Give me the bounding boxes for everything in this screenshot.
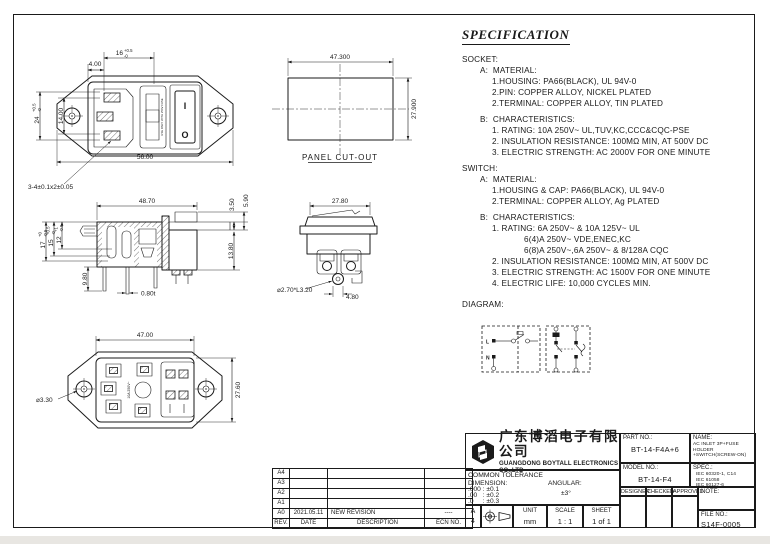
angular-value: ±3° <box>561 490 571 497</box>
svg-text:-0: -0 <box>124 54 128 59</box>
svg-text:+0.5: +0.5 <box>46 226 51 235</box>
dim-4870: 48.70 <box>139 198 156 205</box>
table-header-row: REV. DATE DESCRIPTION ECN NO. <box>273 519 473 529</box>
side-switch-cap <box>175 212 197 222</box>
unit-label: UNIT <box>514 508 546 514</box>
dim-47300: 47.300 <box>330 54 350 61</box>
desc-cell <box>328 499 425 509</box>
rev-cell: A0 <box>273 509 290 519</box>
side-leg-2 <box>126 267 129 294</box>
side-pin-2 <box>122 231 131 258</box>
front-flange-outline <box>57 76 233 156</box>
file-no-cell: FILE NO.: S14F-0005 <box>698 510 756 528</box>
diagram-box-left <box>482 326 540 372</box>
fuse-symbol-2 <box>553 333 560 338</box>
approved-header: APPROVED <box>672 487 698 496</box>
spec-cell: SPEC.: IEC 60320-1, C14 IEC 61058 IEC 60… <box>690 463 756 487</box>
panel-cutout-drawing: 47.300 27.900 PANEL CUT-OUT <box>272 54 418 163</box>
switch-off-marking: O <box>181 130 188 140</box>
name-value-line2: +SWITCH(SCREW-ON) <box>691 453 755 459</box>
spec-line: 1.HOUSING: PA66(BLACK), UL 94V-0 <box>462 76 754 87</box>
model-no-value: BT-14-F4 <box>621 475 689 484</box>
hole-note-330: ⌀3.30 <box>36 397 53 404</box>
svg-text:-0.5: -0.5 <box>59 224 64 232</box>
hole-note-270: ⌀2.70*L3.20 <box>277 287 313 294</box>
designer-header: DESIGNER <box>620 487 646 496</box>
company-cell: 广东博滔电子有限公司 GUANGDONG BOYTALL ELECTRONICS… <box>465 433 620 470</box>
svg-text:+0.5: +0.5 <box>124 48 133 53</box>
date-cell <box>290 499 328 509</box>
specification-section: SPECIFICATION SOCKET: A: MATERIAL: 1.HOU… <box>462 26 754 310</box>
spec-line: 2.PIN: COPPER ALLOY, NICKEL PLATED <box>462 87 754 98</box>
spec-line: DIAGRAM: <box>462 299 754 310</box>
table-row: A2 <box>273 489 473 499</box>
neutral-label: N <box>486 356 490 362</box>
side-leg-1 <box>103 267 106 291</box>
rev-header: REV. <box>273 519 290 529</box>
spec-line: 3. ELECTRIC STRENGTH: AC 2000V FOR ONE M… <box>462 147 754 158</box>
dim-4: 4.00 <box>89 61 102 68</box>
bottom-center-boss <box>135 382 151 398</box>
sheet-cell: SHEET 1 of 1 <box>583 505 620 528</box>
bottom-rating-text: 10A 250V~ <box>127 381 131 398</box>
note-label: NOTE: <box>699 488 755 496</box>
svg-text:+0.5: +0.5 <box>32 103 37 112</box>
side-view-drawing: 48.70 3.50 5.90 13.80 17 +0 -0.5 15 +0.5… <box>38 194 251 298</box>
switch-on-marking: I <box>184 101 187 111</box>
part-no-label: PART NO.: <box>621 434 689 442</box>
note-cell: NOTE: <box>698 487 756 510</box>
name-value-line1: AC INLET 3P+FUSE HOLDER <box>691 442 755 453</box>
fuse-warning-text: USE ONLY WITH 250V FUSE <box>160 98 164 135</box>
rev-cell: A1 <box>273 499 290 509</box>
date-cell <box>290 469 328 479</box>
company-name-cn: 广东博滔电子有限公司 <box>499 430 619 460</box>
end-rocker-profile <box>312 210 360 216</box>
table-row: A4 <box>273 469 473 479</box>
dim-590: 5.90 <box>243 194 250 207</box>
dim-1380-side: 13.80 <box>228 242 235 259</box>
spring-symbol <box>581 344 585 356</box>
rev-cell: A4 <box>273 469 290 479</box>
end-rocker-cap <box>305 217 375 226</box>
file-no-value: S14F-0005 <box>699 520 755 529</box>
side-switch-body <box>169 230 197 270</box>
dim-480: 4.80 <box>346 294 359 301</box>
specification-title: SPECIFICATION <box>462 27 570 45</box>
title-block: 广东博滔电子有限公司 GUANGDONG BOYTALL ELECTRONICS… <box>465 433 756 528</box>
wiring-diagram: L N <box>482 326 590 372</box>
end-flange-plate <box>300 226 377 234</box>
pin-size-note: 3-4±0.1x2±0.05 <box>28 184 73 191</box>
unit-value: mm <box>514 517 546 526</box>
spec-line: A: MATERIAL: <box>462 65 754 76</box>
date-header: DATE <box>290 519 328 529</box>
svg-text:17: 17 <box>40 241 47 249</box>
spec-line: 6(4)A 250V~ VDE,ENEC,KC <box>462 234 754 245</box>
table-row: A0 2021.05.11 NEW REVISION ---- <box>273 509 473 519</box>
spec-line: 2.TERMINAL: COPPER ALLOY, TIN PLATED <box>462 98 754 109</box>
spec-line: 2.TERMINAL: COPPER ALLOY, Ag PLATED <box>462 196 754 207</box>
sheet-size-letter: A <box>466 507 480 517</box>
svg-text:+0: +0 <box>38 231 43 237</box>
date-cell: 2021.05.11 <box>290 509 328 519</box>
desc-cell <box>328 489 425 499</box>
dim-4700: 47.00 <box>137 332 154 339</box>
table-row: A1 <box>273 499 473 509</box>
end-screw-terminal <box>333 274 344 285</box>
side-pin-1 <box>107 226 116 258</box>
svg-text:15: 15 <box>48 239 55 247</box>
side-leg-3 <box>154 267 157 288</box>
sheet-label: SHEET <box>584 508 619 514</box>
svg-text:-0: -0 <box>37 108 42 112</box>
name-label: NAME: <box>691 434 755 442</box>
sheet-value: 1 of 1 <box>584 517 619 526</box>
socket-pin-top <box>104 93 120 102</box>
part-no-cell: PART NO.: BT-14-F4A+6 <box>620 433 690 463</box>
unit-cell: UNIT mm <box>513 505 547 528</box>
desc-cell <box>328 469 425 479</box>
side-switch-bracket <box>169 222 230 230</box>
spec-line: 2. INSULATION RESISTANCE: 100MΩ MIN, AT … <box>462 136 754 147</box>
contact-blade-left <box>556 345 562 352</box>
spec-line: 1.HOUSING & CAP: PA66(BLACK), UL 94V-0 <box>462 185 754 196</box>
model-no-cell: MODEL NO.: BT-14-F4 <box>620 463 690 487</box>
switch-blade-symbol <box>516 335 525 341</box>
approved-signature-cell <box>672 496 698 528</box>
part-no-value: BT-14-F4A+6 <box>621 445 689 454</box>
dim-980: 9.80 <box>82 272 89 285</box>
table-row: A3 <box>273 479 473 489</box>
spec-line: A: MATERIAL: <box>462 174 754 185</box>
fuse-drawer <box>146 110 159 122</box>
svg-text:24: 24 <box>34 116 41 124</box>
bottom-flange-outline <box>68 352 222 428</box>
dim-2780: 27.80 <box>332 198 349 205</box>
dim-27900: 27.900 <box>411 99 418 119</box>
file-no-label: FILE NO.: <box>699 511 755 519</box>
rev-cell: A2 <box>273 489 290 499</box>
dim-080t: 0.80t <box>141 291 156 298</box>
scale-value: 1 : 1 <box>548 517 582 526</box>
sheet-size-cell: A 4 <box>465 505 481 528</box>
dim-16: 16 <box>116 50 124 57</box>
spec-line: SOCKET: <box>462 54 754 65</box>
tolerance-title: COMMON TOLERANCE <box>468 472 543 479</box>
spec-line: 4. ELECTRIC LIFE: 10,000 CYCLES MIN. <box>462 278 754 289</box>
third-angle-projection-icon <box>482 506 512 527</box>
svg-text:12: 12 <box>56 236 63 244</box>
tolerance-cell: COMMON TOLERANCE DIMENSION: ANGULAR: .00… <box>465 470 620 505</box>
spec-line: 3. ELECTRIC STRENGTH: AC 1500V FOR ONE M… <box>462 267 754 278</box>
dim-56: 56.00 <box>137 154 154 161</box>
spec-line: 6(8)A 250V~,6A 250V~ & 8/128A CQC <box>462 245 754 256</box>
spec-label: SPEC.: <box>691 464 755 472</box>
dim-14: 14.00 <box>58 107 65 124</box>
date-cell <box>290 489 328 499</box>
front-view-drawing: USE ONLY WITH 250V FUSE I O 4.00 16 +0.5… <box>28 48 233 191</box>
socket-pin-middle <box>97 112 113 121</box>
checked-signature-cell <box>646 496 672 528</box>
end-view-drawing: 27.80 ⌀2.70*L3.20 4.80 <box>277 198 377 301</box>
panel-cutout-label: PANEL CUT-OUT <box>302 153 378 162</box>
spec-line: 1. RATING: 6A 250V~ & 10A 125V~ UL <box>462 223 754 234</box>
spec-line: 2. INSULATION RESISTANCE: 100MΩ MIN, AT … <box>462 256 754 267</box>
spec-line: 1. RATING: 10A 250V~ UL,TUV,KC,CCC&CQC-P… <box>462 125 754 136</box>
line-label: L <box>486 340 489 346</box>
scale-cell: SCALE 1 : 1 <box>547 505 583 528</box>
dim-350: 3.50 <box>229 198 236 211</box>
spec-line: SWITCH: <box>462 163 754 174</box>
desc-cell: NEW REVISION <box>328 509 425 519</box>
scale-label: SCALE <box>548 508 582 514</box>
desc-cell <box>328 479 425 489</box>
revision-table: A4 A3 A2 A1 A0 2021.05.11 NEW REVISION -… <box>272 468 473 529</box>
side-flange-ear <box>80 226 97 236</box>
date-cell <box>290 479 328 489</box>
dim-24: 24 +0.5 -0 <box>32 103 43 124</box>
svg-text:+1: +1 <box>54 226 59 232</box>
name-cell: NAME: AC INLET 3P+FUSE HOLDER +SWITCH(SC… <box>690 433 756 463</box>
dim-2760: 27.60 <box>235 381 242 398</box>
spec-line: B: CHARACTERISTICS: <box>462 114 754 125</box>
angular-label: ANGULAR: <box>548 480 582 487</box>
designer-signature-cell <box>620 496 646 528</box>
rev-cell: A3 <box>273 479 290 489</box>
bottom-view-drawing: 10A 250V~ 47.00 27.60 ⌀3.30 <box>36 332 242 428</box>
model-no-label: MODEL NO.: <box>621 464 689 472</box>
socket-pin-bottom <box>104 131 120 140</box>
projection-cell <box>481 505 513 528</box>
spec-line: B: CHARACTERISTICS: <box>462 212 754 223</box>
checked-header: CHECKED <box>646 487 672 496</box>
company-logo <box>470 439 496 465</box>
side-fuse-window <box>139 229 156 244</box>
desc-header: DESCRIPTION <box>328 519 425 529</box>
contact-blade-right <box>576 345 582 352</box>
sheet-size-number: 4 <box>466 517 480 526</box>
